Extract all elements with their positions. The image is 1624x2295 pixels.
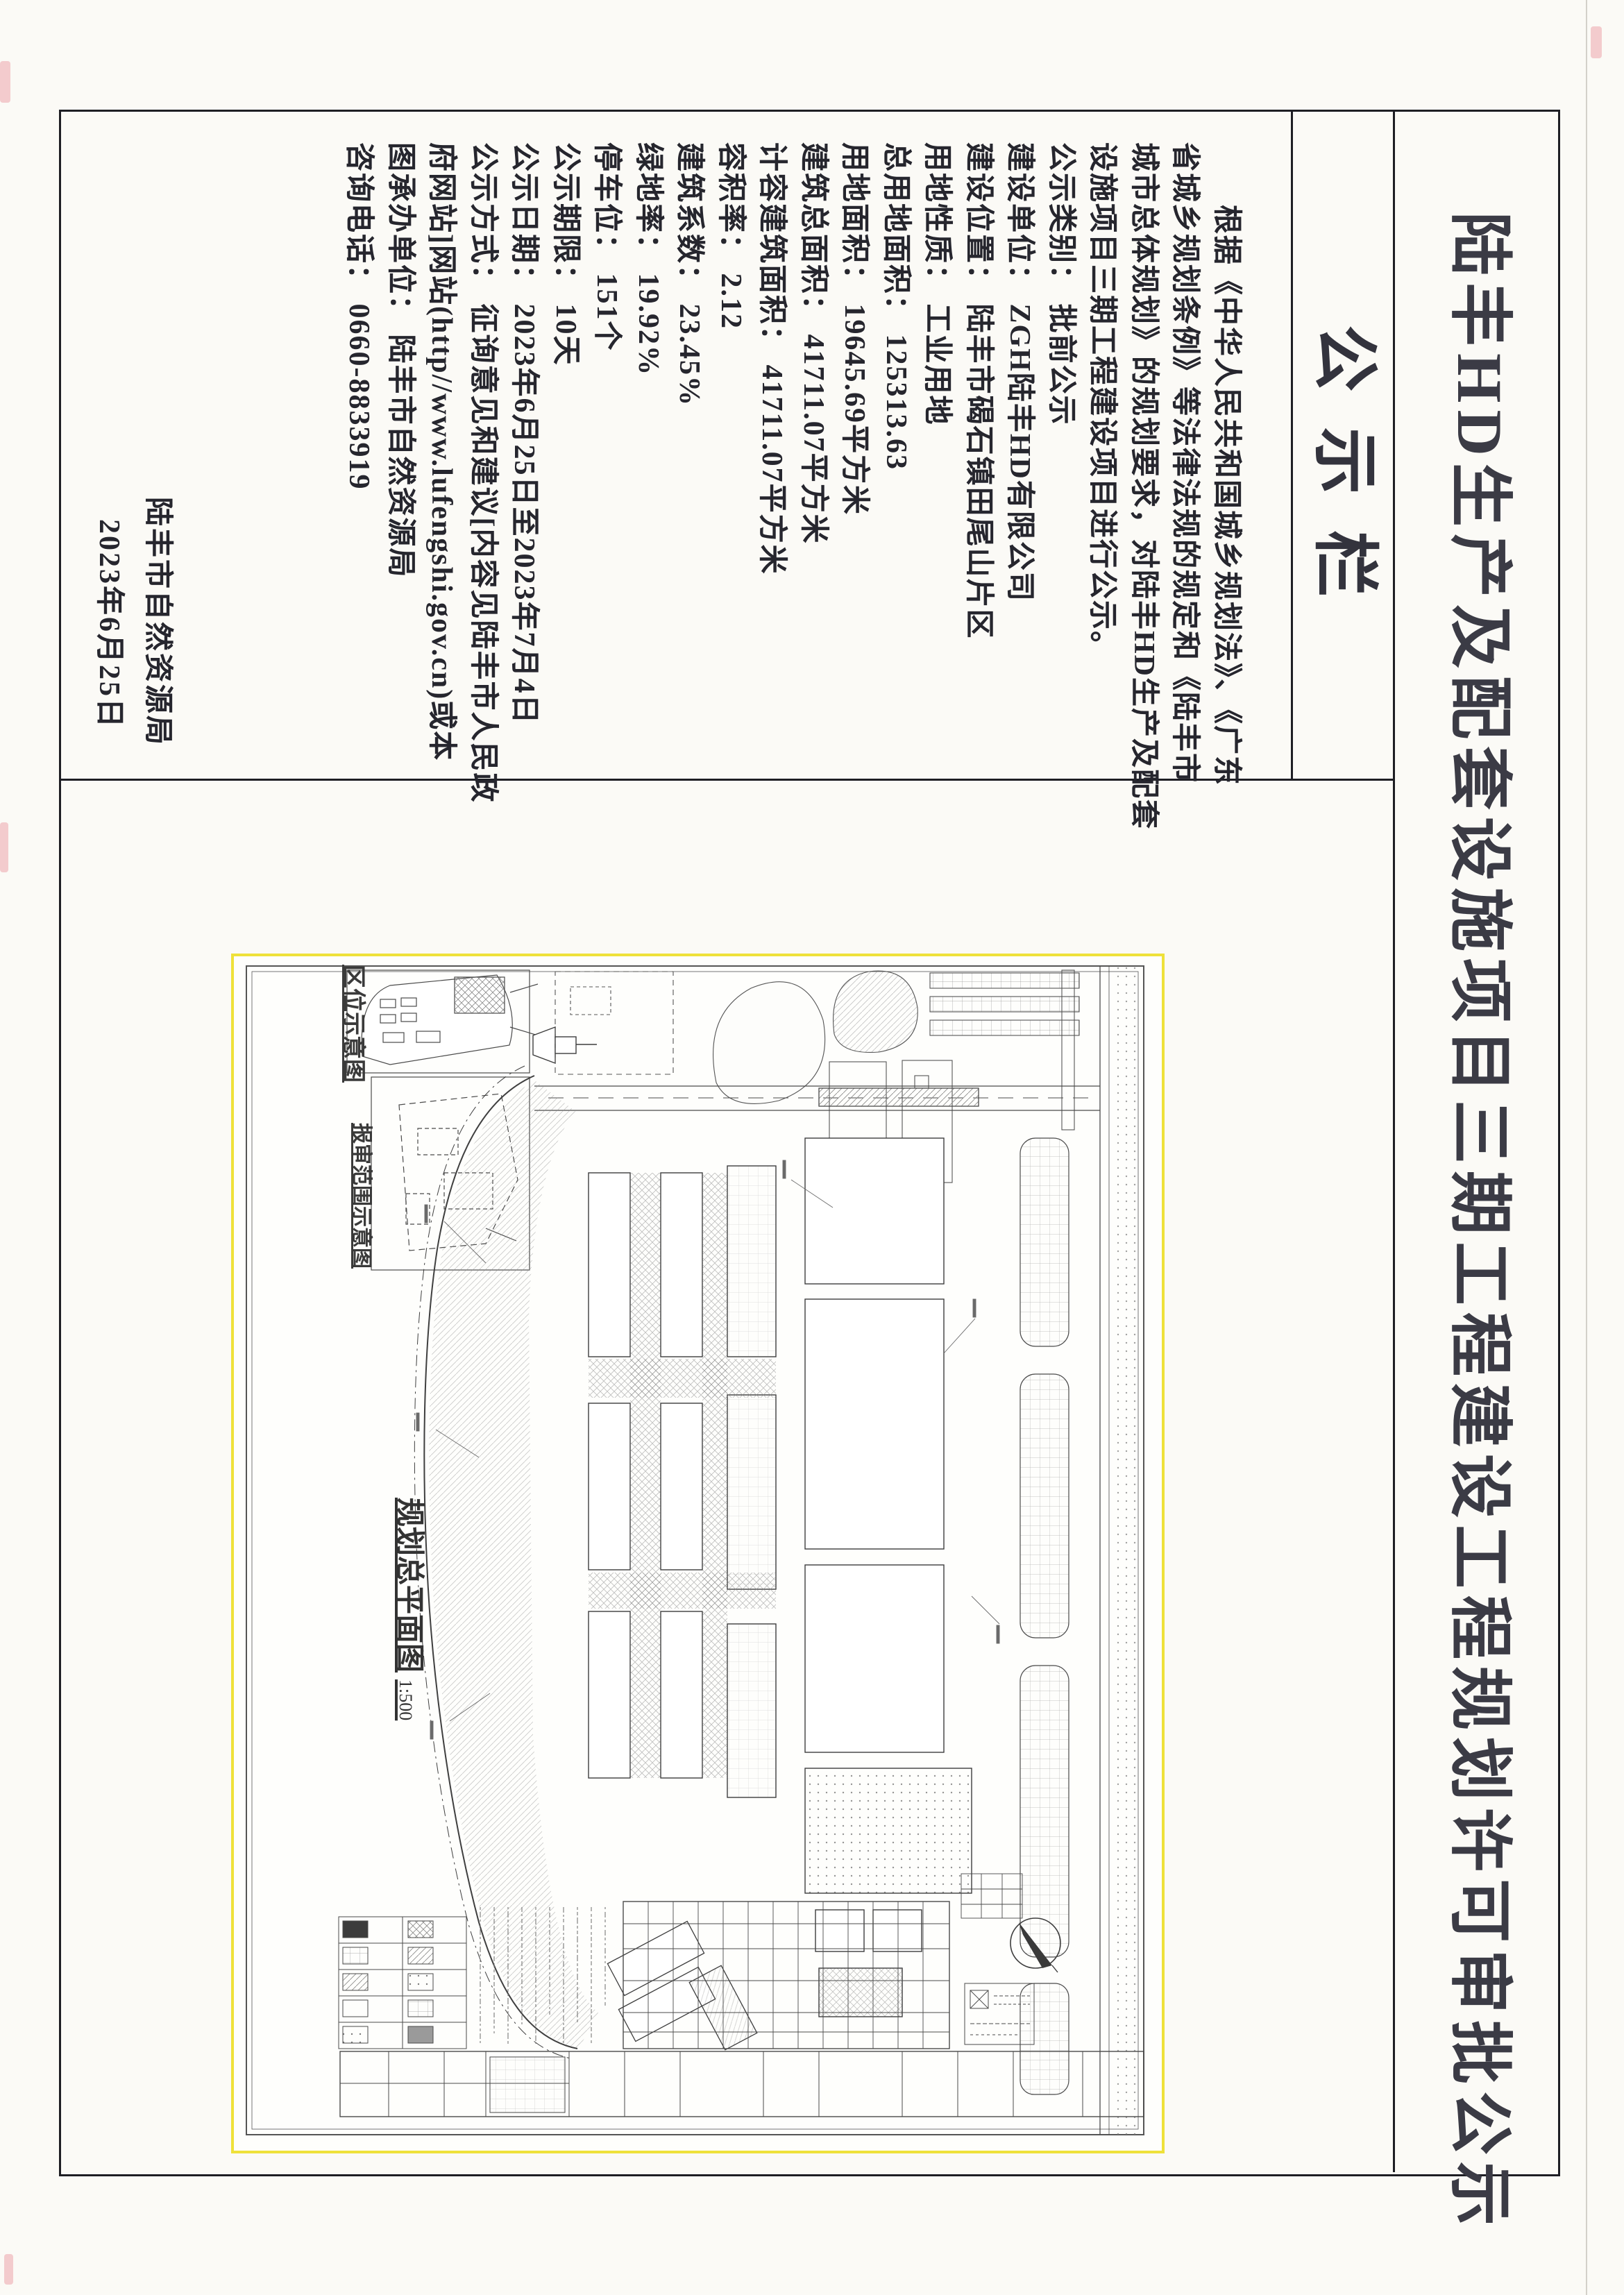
scanned-notice-page: 陆丰HD生产及配套设施项目三期工程建设工程规划许可审批公示 公示栏 根据《中华人…	[0, 0, 1624, 2295]
board-label-text: 公示栏	[1308, 325, 1382, 633]
notice-line: 总用地面积： 125313.63	[881, 142, 911, 471]
notice-line: 公示日期： 2023年6月25日至2023年7月4日	[509, 142, 539, 725]
notice-line: 容积率： 2.12	[716, 142, 745, 330]
notice-line: 建设位置： 陆丰市碣石镇田尾山片区	[964, 142, 993, 640]
site-plan-drawing	[234, 956, 1162, 2151]
main-road-corridor	[1100, 966, 1137, 2135]
scan-artifact	[0, 61, 10, 103]
board-label: 公示栏	[1311, 325, 1378, 633]
boundary-road	[414, 1066, 598, 2058]
notice-line: 建筑总面积： 41711.07平方米	[799, 142, 828, 545]
notice-line: 公示方式： 征询意见和建议[内容见陆丰市人民政	[468, 142, 498, 804]
scan-artifact	[1591, 26, 1602, 58]
legend-table	[339, 1917, 466, 2049]
site-plan-photo: 区位示意图 报审范围示意图 规划总平面图1:500	[231, 954, 1165, 2153]
scan-artifact	[4, 2254, 13, 2285]
notice-line: 建设单位： ZGH陆丰HD有限公司	[1005, 142, 1034, 602]
notice-line: 计容建筑面积： 41711.07平方米	[757, 142, 786, 575]
page-edge-line	[1586, 0, 1587, 2295]
notice-line: 绿地率： 19.92%	[634, 142, 663, 376]
access-road	[534, 1086, 1100, 1110]
notice-line: 咨询电话： 0660-8833919	[344, 142, 373, 491]
signature-date: 2023年6月25日	[94, 519, 124, 729]
master-plan-scale: 1:500	[396, 1679, 416, 1720]
page-title-text: 陆丰HD生产及配套设施项目三期工程建设工程规划许可审批公示	[1444, 212, 1515, 2233]
notice-line: 用地性质： 工业用地	[922, 142, 951, 426]
notice-line: 用地面积： 19645.69平方米	[840, 142, 869, 516]
notice-line: 停车位： 151个	[592, 142, 621, 352]
location-inset	[347, 970, 538, 1073]
parking-strips	[1020, 1138, 1069, 2094]
notice-line: 建筑系数： 23.45%	[675, 142, 704, 407]
notice-line: 图承办单位： 陆丰市自然资源局	[386, 142, 415, 579]
notice-line: 城市总体规划》的规划要求，对陆丰HD生产及配套	[1129, 142, 1158, 830]
signature-agency: 陆丰市自然资源局	[143, 497, 172, 747]
slanted-buildings	[607, 1922, 756, 2050]
title-divider-line	[1393, 110, 1395, 2172]
gate-symbol	[533, 1027, 597, 1063]
notice-line: 公示类别： 批前公示	[1047, 142, 1076, 426]
location-inset-caption: 区位示意图	[341, 965, 364, 1083]
notice-line: 府网站]网站(http//www.lufengshi.gov.cn)或本	[427, 142, 456, 761]
notice-line: 设施项目三期工程建设项目进行公示。	[1088, 142, 1117, 661]
notice-line: 根据《中华人民共和国城乡规划法》、《广东	[1212, 205, 1241, 786]
notice-line: 公示期限： 10天	[551, 142, 580, 366]
board-box-left-line	[1291, 110, 1293, 781]
master-plan-caption: 规划总平面图1:500	[394, 1498, 423, 1720]
master-plan-caption-text: 规划总平面图	[393, 1498, 425, 1672]
scan-artifact	[0, 822, 8, 872]
review-scope-caption: 报审范围示意图	[350, 1123, 371, 1269]
notice-line: 省城乡规划条例》等法律法规的规定和《陆丰市	[1170, 142, 1199, 784]
page-title: 陆丰HD生产及配套设施项目三期工程建设工程规划许可审批公示	[1448, 212, 1512, 2233]
